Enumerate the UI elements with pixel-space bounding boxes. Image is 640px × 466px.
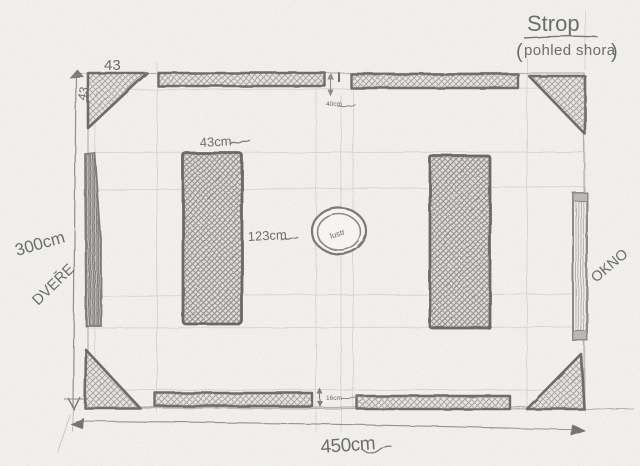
svg-text:pohled shora: pohled shora <box>524 42 616 59</box>
svg-text:16cm: 16cm <box>326 395 342 402</box>
svg-text:(: ( <box>516 41 523 63</box>
svg-text:43: 43 <box>104 57 121 74</box>
svg-text:123cm: 123cm <box>247 227 287 244</box>
svg-text:450cm: 450cm <box>320 433 376 458</box>
svg-text:): ) <box>611 41 618 63</box>
svg-text:40cm: 40cm <box>326 101 342 108</box>
svg-text:43cm: 43cm <box>199 133 232 150</box>
svg-text:Strop: Strop <box>527 11 580 36</box>
